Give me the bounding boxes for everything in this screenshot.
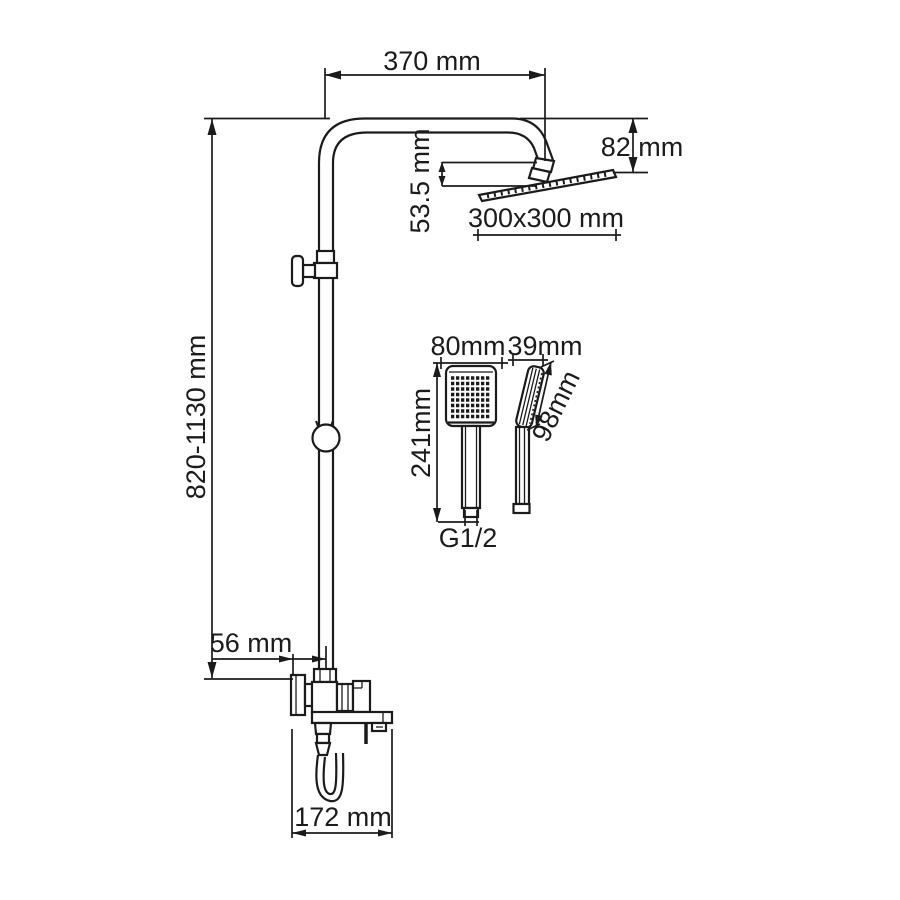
shower-column-pipe (319, 119, 553, 673)
label-head-size: 300x300 mm (468, 203, 624, 233)
valve-body (312, 682, 337, 713)
cartridge (337, 684, 353, 711)
dim-head-drop (439, 162, 538, 186)
slider-knob (313, 421, 340, 452)
head-ball-joint (529, 158, 554, 182)
label-column-height: 820-1130 mm (181, 335, 211, 500)
handle (462, 426, 480, 508)
dim-column-height (204, 119, 330, 680)
mixer-assembly (291, 669, 392, 801)
thread-connector (464, 508, 478, 517)
label-head-height: 82 mm (601, 132, 684, 162)
label-handshower-depth: 39mm (507, 331, 582, 361)
slider-bracket (292, 251, 337, 286)
shower-hose (315, 723, 343, 801)
label-spout-reach: 172 mm (294, 802, 392, 832)
label-connection-thread: G1/2 (439, 523, 498, 553)
label-handshower-length: 241mm (406, 388, 436, 478)
label-arm-reach: 370 mm (383, 46, 481, 76)
hand-shower-front-view (446, 366, 496, 517)
wall-escutcheon (291, 675, 305, 715)
label-head-drop: 53.5 mm (405, 128, 435, 233)
label-wall-offset: 56 mm (210, 628, 293, 658)
label-handshower-width: 80mm (430, 331, 505, 361)
dim-arm-reach (325, 68, 545, 161)
shower-dimension-diagram: 370 mm 82 mm 53.5 mm 300x300 mm 820-1130… (0, 0, 900, 900)
diagram-svg: 370 mm 82 mm 53.5 mm 300x300 mm 820-1130… (0, 0, 900, 900)
